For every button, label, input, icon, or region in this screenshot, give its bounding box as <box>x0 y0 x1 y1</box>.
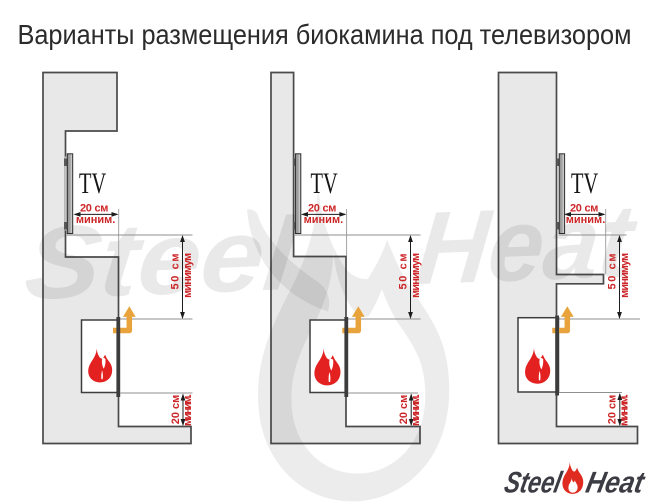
svg-text:миним.: миним. <box>566 214 606 226</box>
svg-text:Steel: Steel <box>502 467 565 500</box>
svg-text:миним.: миним. <box>410 394 422 426</box>
svg-text:20 см: 20 см <box>80 202 109 214</box>
svg-text:20 см: 20 см <box>398 395 410 425</box>
svg-text:TV: TV <box>79 167 106 200</box>
svg-text:50 см: 50 см <box>398 254 410 290</box>
svg-text:Варианты размещения биокамина: Варианты размещения биокамина под телеви… <box>18 19 632 50</box>
svg-text:миним.: миним. <box>76 214 116 226</box>
svg-text:Heat: Heat <box>583 467 649 500</box>
svg-text:20 см: 20 см <box>570 202 599 214</box>
svg-text:20 см: 20 см <box>607 395 619 425</box>
svg-text:миним.: миним. <box>619 394 631 426</box>
svg-text:минимум: минимум <box>182 253 194 298</box>
svg-text:50 см: 50 см <box>170 254 182 290</box>
svg-text:TV: TV <box>311 167 338 200</box>
svg-text:20 см: 20 см <box>308 202 337 214</box>
svg-text:миним.: миним. <box>182 394 194 426</box>
svg-text:20 см: 20 см <box>170 395 182 425</box>
svg-text:миним.: миним. <box>304 214 344 226</box>
svg-text:50 см: 50 см <box>607 254 619 290</box>
svg-text:минимум: минимум <box>410 253 422 298</box>
svg-text:минимум: минимум <box>619 253 631 298</box>
svg-text:TV: TV <box>571 167 598 200</box>
